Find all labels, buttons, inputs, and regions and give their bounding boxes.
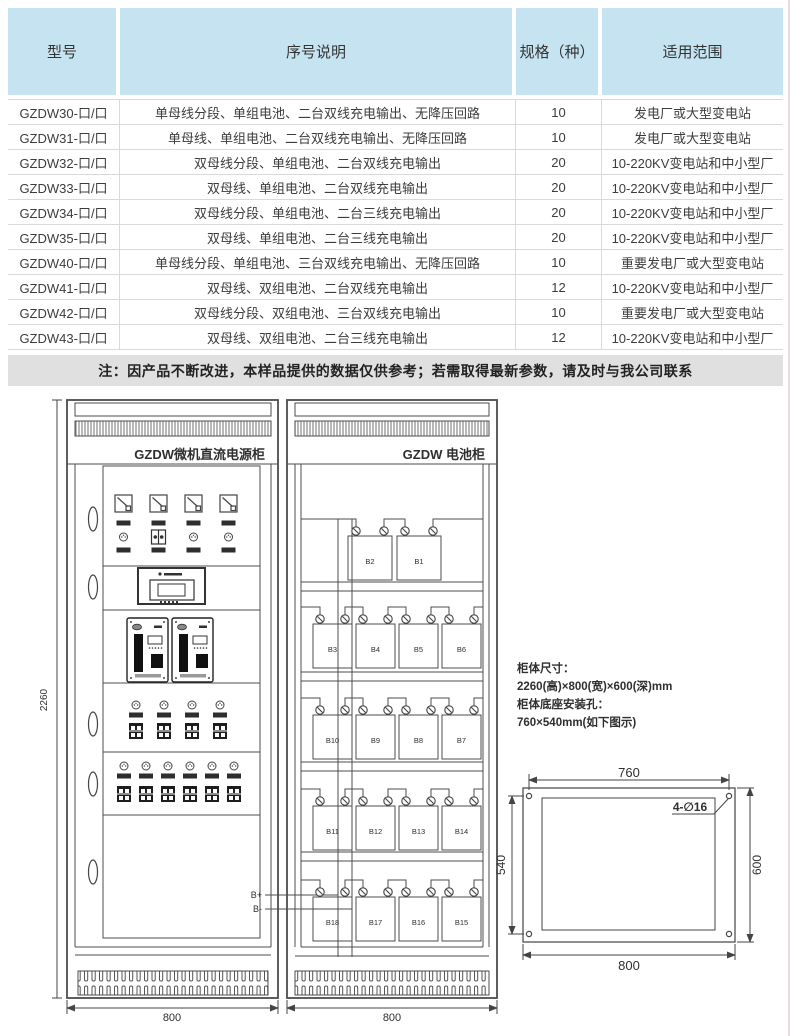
charger-modules <box>127 618 213 682</box>
battery-label: B16 <box>412 918 425 927</box>
feeder-panel-1 <box>129 701 227 739</box>
terminal-label-positive: B+ <box>251 890 262 900</box>
spec-table-body: GZDW30-口/口单母线分段、单组电池、二台双线充电输出、无降压回路10发电厂… <box>8 99 783 350</box>
cell-spec: 10 <box>516 125 602 149</box>
cell-model: GZDW35-口/口 <box>8 225 120 249</box>
door-handle-icon <box>89 507 98 884</box>
battery-label: B2 <box>365 557 374 566</box>
cell-range: 10-220KV变电站和中小型厂 <box>602 175 783 199</box>
spec-line-3: 柜体底座安装孔： <box>516 697 609 711</box>
cell-model: GZDW32-口/口 <box>8 150 120 174</box>
battery-cabinet-width-dim: 800 <box>383 1012 401 1024</box>
header-spec: 规格（种） <box>516 8 602 95</box>
mounting-hole-diagram <box>508 774 754 960</box>
cell-range: 10-220KV变电站和中小型厂 <box>602 150 783 174</box>
header-description: 序号说明 <box>120 8 516 95</box>
cell-spec: 12 <box>516 275 602 299</box>
cell-desc: 双母线、单组电池、二台三线充电输出 <box>120 225 516 249</box>
header-range: 适用范围 <box>602 8 783 95</box>
cell-desc: 双母线、双组电池、二台三线充电输出 <box>120 325 516 349</box>
cell-model: GZDW43-口/口 <box>8 325 120 349</box>
spec-line-2: 2260(高)×800(宽)×600(深)mm <box>517 679 672 693</box>
spec-table: 型号 序号说明 规格（种） 适用范围 GZDW30-口/口单母线分段、单组电池、… <box>8 8 783 386</box>
power-cabinet-width-dim: 800 <box>163 1012 181 1024</box>
cell-range: 重要发电厂或大型变电站 <box>602 300 783 324</box>
cabinet-drawing: GZDW微机直流电源柜 <box>0 376 790 1036</box>
table-row: GZDW31-口/口单母线、单组电池、二台双线充电输出、无降压回路10发电厂或大… <box>8 125 783 150</box>
battery-label: B6 <box>457 645 466 654</box>
battery-label: B7 <box>457 736 466 745</box>
feeder-panel-2 <box>117 762 241 802</box>
battery-label: B12 <box>369 827 382 836</box>
battery-label: B13 <box>412 827 425 836</box>
cell-model: GZDW34-口/口 <box>8 200 120 224</box>
cell-range: 10-220KV变电站和中小型厂 <box>602 275 783 299</box>
cell-model: GZDW40-口/口 <box>8 250 120 274</box>
power-cabinet <box>67 400 278 998</box>
cell-spec: 20 <box>516 200 602 224</box>
table-row: GZDW40-口/口单母线分段、单组电池、三台双线充电输出、无降压回路10重要发… <box>8 250 783 275</box>
battery-label: B17 <box>369 918 382 927</box>
cell-range: 10-220KV变电站和中小型厂 <box>602 200 783 224</box>
table-row: GZDW33-口/口双母线、单组电池、二台双线充电输出2010-220KV变电站… <box>8 175 783 200</box>
battery-cabinet <box>287 400 497 998</box>
cell-spec: 12 <box>516 325 602 349</box>
battery-label: B3 <box>328 645 337 654</box>
cell-range: 10-220KV变电站和中小型厂 <box>602 225 783 249</box>
datasheet-page: 型号 序号说明 规格（种） 适用范围 GZDW30-口/口单母线分段、单组电池、… <box>0 0 790 1036</box>
battery-labels: B2 B1 B3 B4 B5 B6 B10 B9 B8 B7 B11 B12 B… <box>326 557 468 927</box>
terminal-label-negative: B- <box>253 904 262 914</box>
cell-spec: 10 <box>516 100 602 124</box>
cell-spec: 10 <box>516 300 602 324</box>
spec-line-1: 柜体尺寸： <box>516 661 575 675</box>
mount-right-dim: 600 <box>750 855 764 875</box>
cell-model: GZDW33-口/口 <box>8 175 120 199</box>
cell-spec: 10 <box>516 250 602 274</box>
cell-model: GZDW31-口/口 <box>8 125 120 149</box>
table-row: GZDW34-口/口双母线分段、单组电池、二台三线充电输出2010-220KV变… <box>8 200 783 225</box>
table-row: GZDW30-口/口单母线分段、单组电池、二台双线充电输出、无降压回路10发电厂… <box>8 100 783 125</box>
mount-holes-label: 4-∅16 <box>673 800 708 814</box>
table-row: GZDW42-口/口双母线分段、双组电池、三台双线充电输出10重要发电厂或大型变… <box>8 300 783 325</box>
mount-top-dim: 760 <box>618 765 640 780</box>
cell-spec: 20 <box>516 175 602 199</box>
cell-range: 10-220KV变电站和中小型厂 <box>602 325 783 349</box>
battery-label: B1 <box>414 557 423 566</box>
spec-table-header: 型号 序号说明 规格（种） 适用范围 <box>8 8 783 95</box>
cabinet-height-dim: 2260 <box>39 688 50 711</box>
power-cabinet-title: GZDW微机直流电源柜 <box>134 447 265 462</box>
cell-desc: 单母线分段、单组电池、二台双线充电输出、无降压回路 <box>120 100 516 124</box>
table-row: GZDW41-口/口双母线、双组电池、二台双线充电输出1210-220KV变电站… <box>8 275 783 300</box>
battery-label: B8 <box>414 736 423 745</box>
battery-cabinet-title: GZDW 电池柜 <box>403 447 485 462</box>
cell-model: GZDW42-口/口 <box>8 300 120 324</box>
cell-desc: 双母线分段、双组电池、三台双线充电输出 <box>120 300 516 324</box>
spec-line-4: 760×540mm(如下图示) <box>517 715 636 729</box>
cell-desc: 双母线、双组电池、二台双线充电输出 <box>120 275 516 299</box>
battery-label: B4 <box>371 645 380 654</box>
battery-label: B11 <box>326 827 339 836</box>
cell-model: GZDW41-口/口 <box>8 275 120 299</box>
cell-model: GZDW30-口/口 <box>8 100 120 124</box>
cell-desc: 双母线分段、单组电池、二台双线充电输出 <box>120 150 516 174</box>
battery-label: B5 <box>414 645 423 654</box>
cell-desc: 单母线、单组电池、二台双线充电输出、无降压回路 <box>120 125 516 149</box>
mount-bottom-dim: 800 <box>618 958 640 973</box>
cabinet-specs-text: 柜体尺寸： 2260(高)×800(宽)×600(深)mm 柜体底座安装孔： 7… <box>516 661 672 729</box>
cell-desc: 双母线、单组电池、二台双线充电输出 <box>120 175 516 199</box>
monitor-module <box>138 568 205 604</box>
mount-left-dim: 540 <box>494 855 508 875</box>
meter-panel <box>115 495 237 553</box>
table-row: GZDW32-口/口双母线分段、单组电池、二台双线充电输出2010-220KV变… <box>8 150 783 175</box>
battery-label: B18 <box>326 918 339 927</box>
cell-range: 发电厂或大型变电站 <box>602 100 783 124</box>
battery-label: B9 <box>371 736 380 745</box>
header-model: 型号 <box>8 8 120 95</box>
table-row: GZDW43-口/口双母线、双组电池、二台三线充电输出1210-220KV变电站… <box>8 325 783 350</box>
battery-label: B10 <box>326 736 339 745</box>
cell-spec: 20 <box>516 225 602 249</box>
cell-range: 发电厂或大型变电站 <box>602 125 783 149</box>
cell-range: 重要发电厂或大型变电站 <box>602 250 783 274</box>
cell-spec: 20 <box>516 150 602 174</box>
table-row: GZDW35-口/口双母线、单组电池、二台三线充电输出2010-220KV变电站… <box>8 225 783 250</box>
cell-desc: 单母线分段、单组电池、三台双线充电输出、无降压回路 <box>120 250 516 274</box>
cell-desc: 双母线分段、单组电池、二台三线充电输出 <box>120 200 516 224</box>
battery-label: B14 <box>455 827 468 836</box>
battery-label: B15 <box>455 918 468 927</box>
